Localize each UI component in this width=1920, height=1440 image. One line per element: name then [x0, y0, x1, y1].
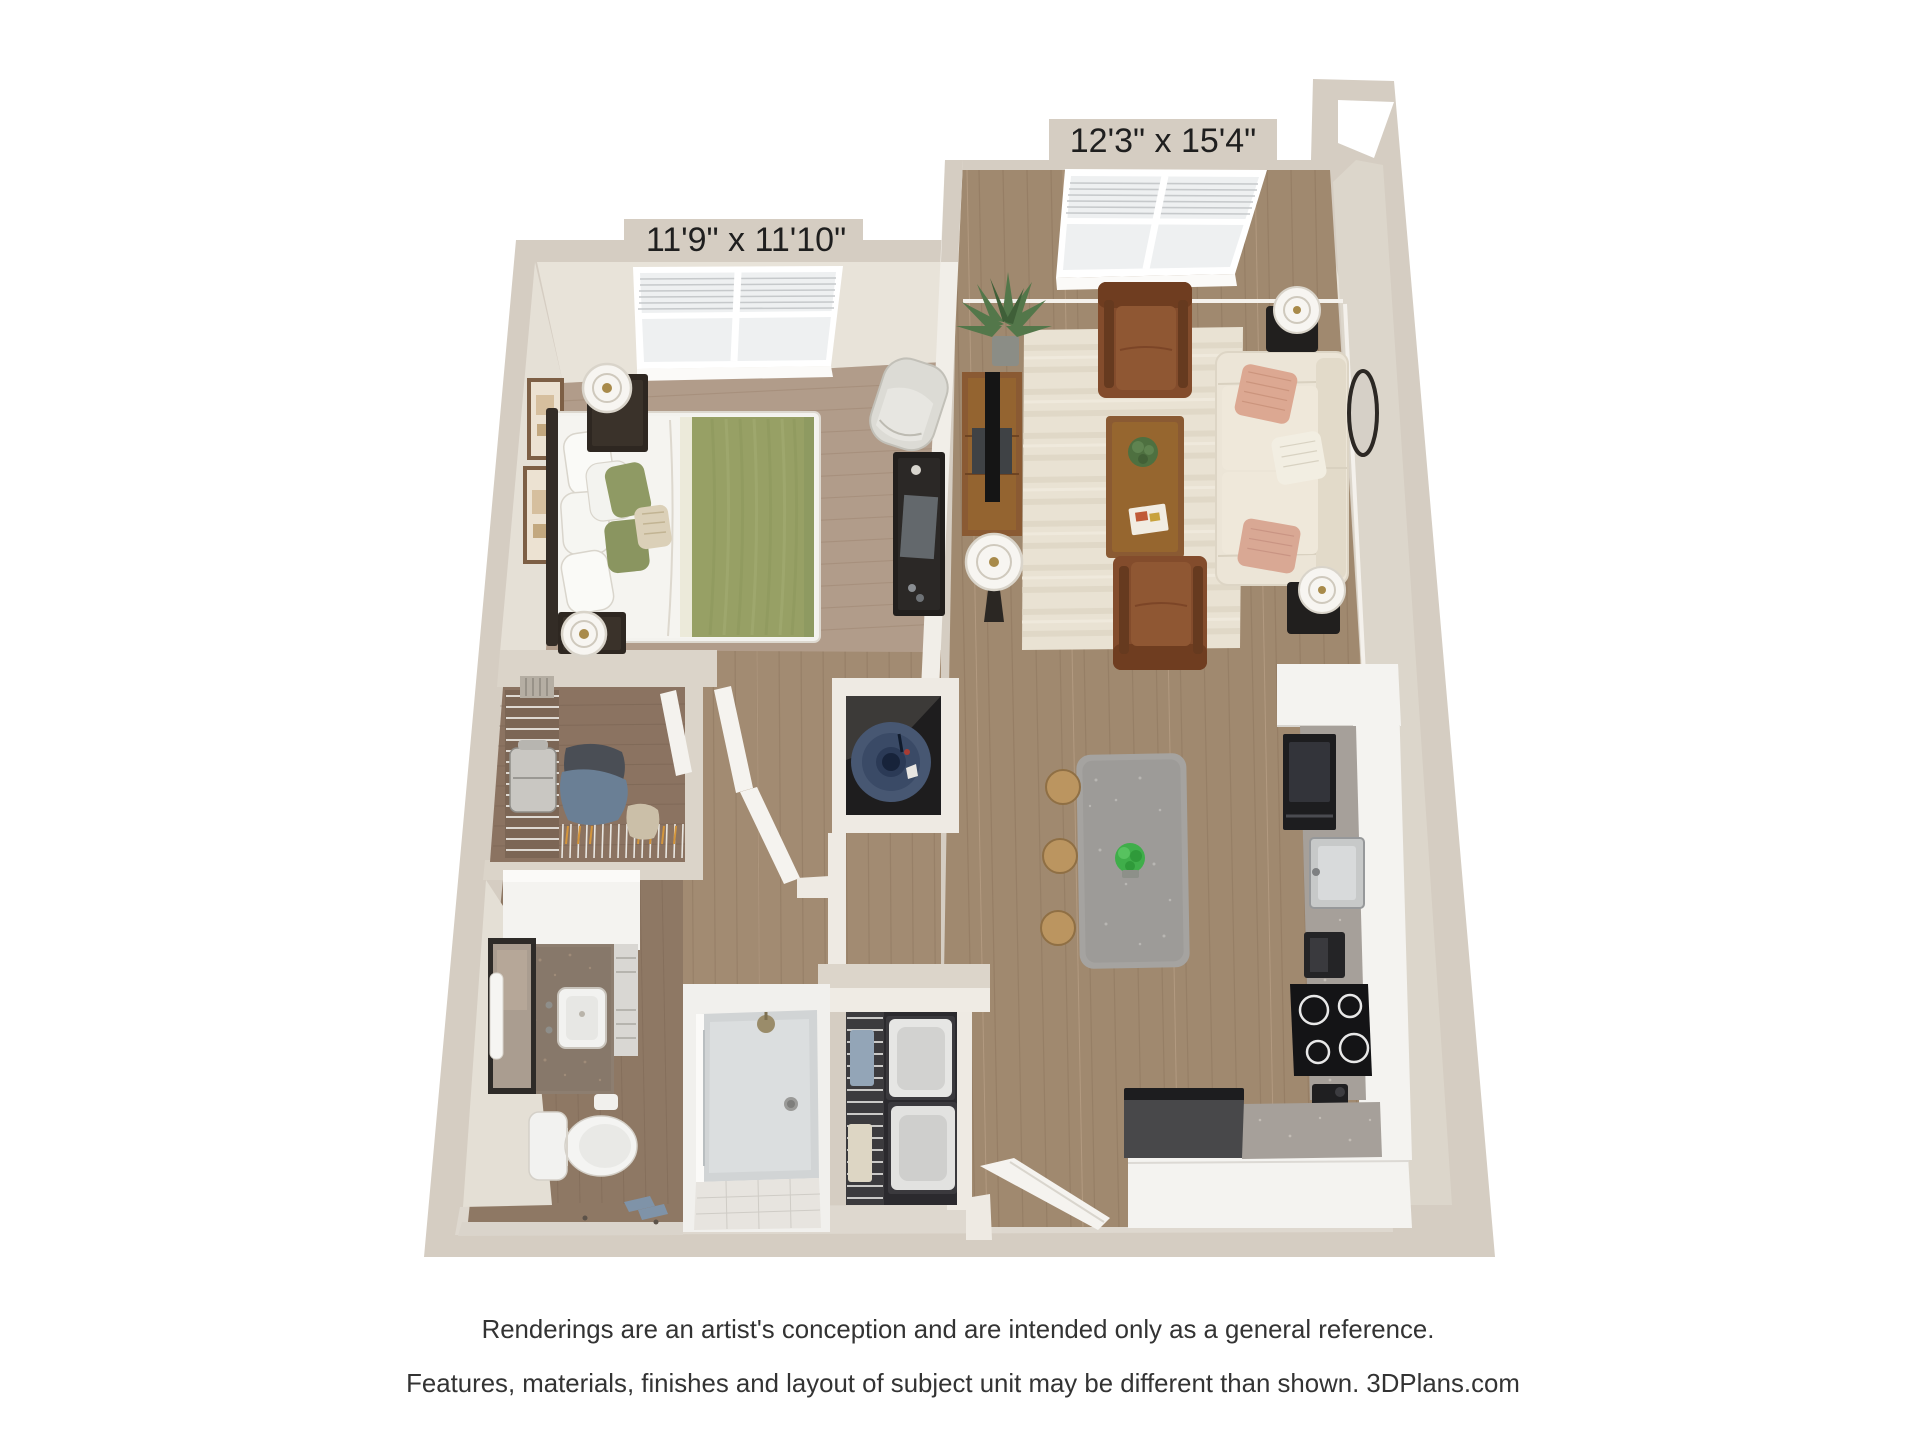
svg-text:11'9" x 11'10": 11'9" x 11'10": [646, 221, 846, 259]
svg-text:Features, materials, finishes: Features, materials, finishes and layout…: [406, 1370, 1520, 1398]
svg-text:Renderings are an artist's con: Renderings are an artist's conception an…: [482, 1316, 1435, 1344]
svg-text:12'3" x 15'4": 12'3" x 15'4": [1070, 122, 1256, 160]
